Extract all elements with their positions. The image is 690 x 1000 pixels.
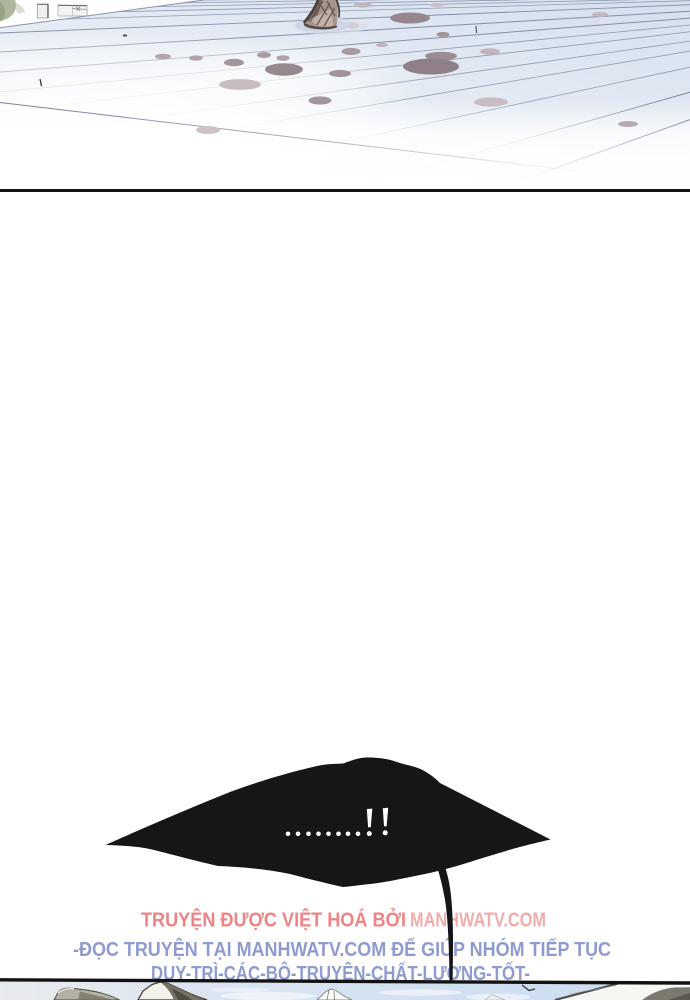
svg-text:-ĐỌC TRUYỆN TẠI MANHWATV.COM Đ: -ĐỌC TRUYỆN TẠI MANHWATV.COM ĐỂ GIÚP NHÓ…	[73, 937, 611, 961]
svg-text:MANHWATV.COM: MANHWATV.COM	[410, 910, 546, 932]
svg-text:TRUYỆN ĐƯỢC VIỆT HOÁ BỞI: TRUYỆN ĐƯỢC VIỆT HOÁ BỞI	[141, 908, 406, 932]
